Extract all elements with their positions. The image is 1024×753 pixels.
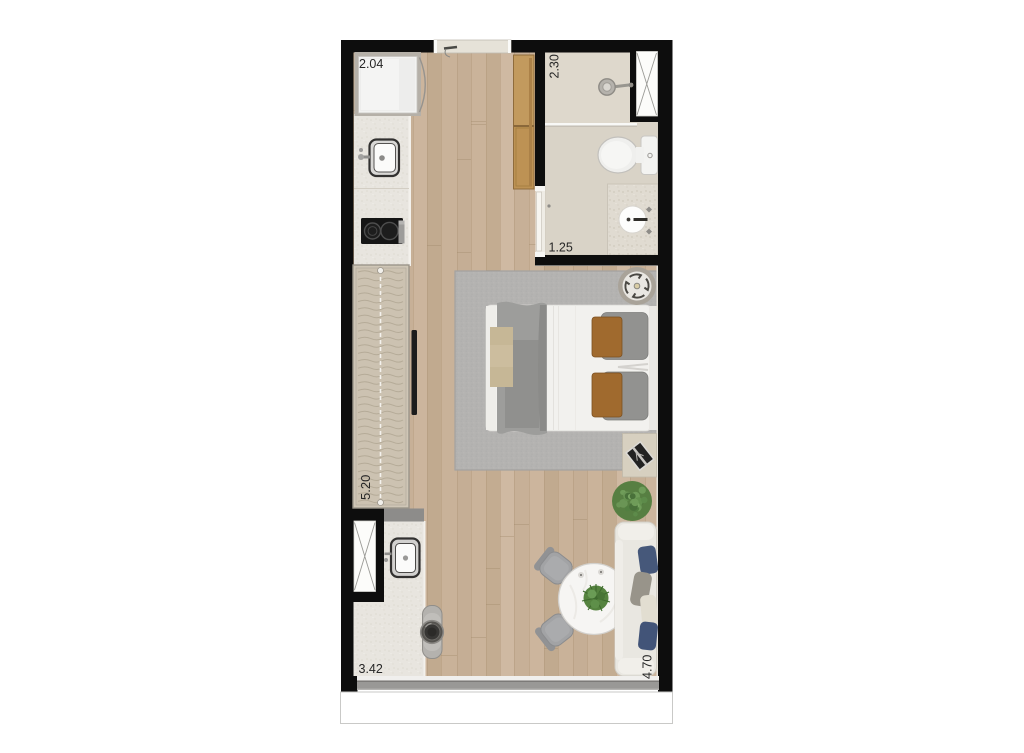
svg-text:4.70: 4.70 bbox=[641, 655, 655, 679]
svg-text:2.30: 2.30 bbox=[548, 54, 562, 78]
svg-text:3.42: 3.42 bbox=[359, 662, 383, 676]
svg-text:5.20: 5.20 bbox=[358, 475, 373, 500]
svg-text:2.04: 2.04 bbox=[359, 57, 383, 71]
svg-text:1.25: 1.25 bbox=[549, 241, 573, 255]
